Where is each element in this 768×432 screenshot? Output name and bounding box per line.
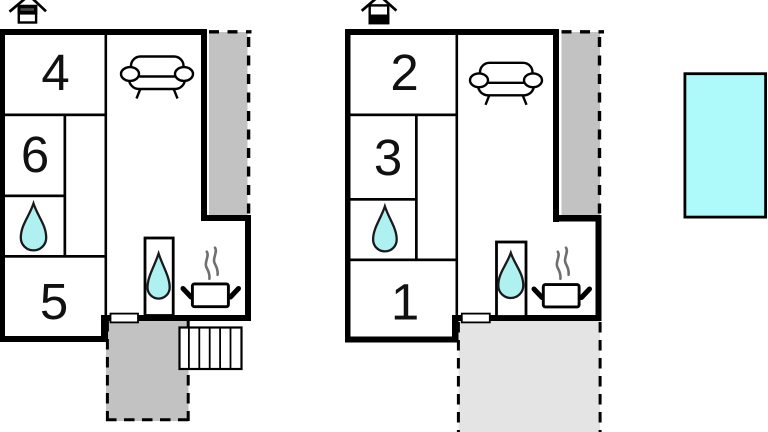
svg-text:3: 3 (374, 129, 402, 186)
svg-text:6: 6 (21, 126, 49, 183)
svg-text:4: 4 (41, 44, 69, 101)
svg-text:2: 2 (390, 44, 418, 101)
svg-text:1: 1 (391, 274, 419, 331)
svg-text:5: 5 (40, 273, 68, 330)
